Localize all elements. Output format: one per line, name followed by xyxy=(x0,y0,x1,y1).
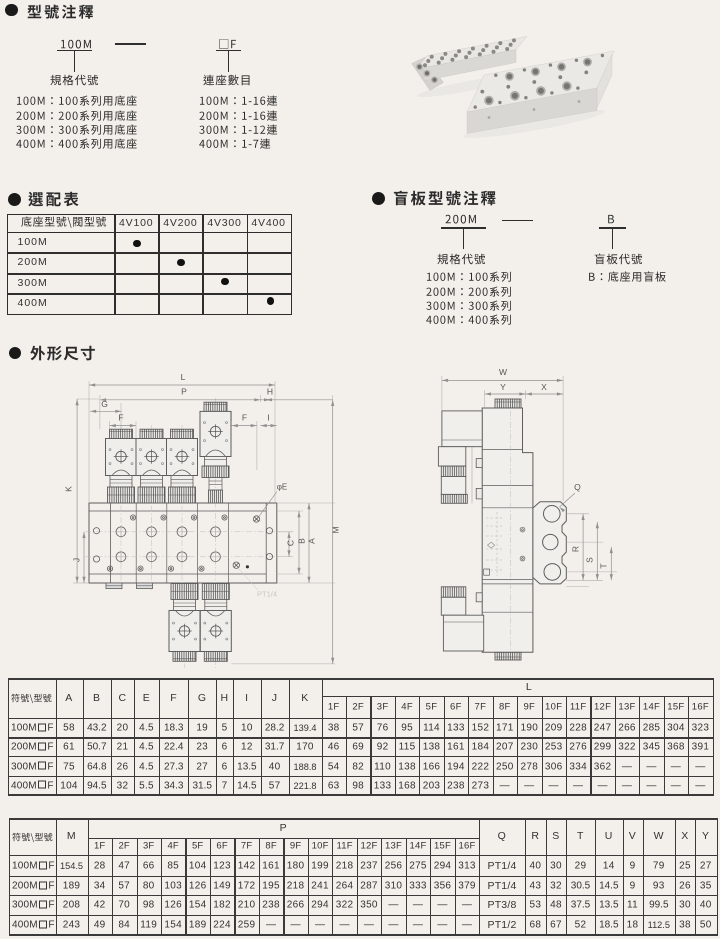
svg-text:I: I xyxy=(267,413,269,423)
svg-text:A: A xyxy=(307,538,317,544)
svg-text:PT1/4: PT1/4 xyxy=(257,590,277,599)
svg-text:L: L xyxy=(181,372,186,382)
svg-text:P: P xyxy=(181,387,187,397)
svg-text:B: B xyxy=(297,538,307,544)
svg-text:G: G xyxy=(101,399,108,409)
svg-text:H: H xyxy=(267,387,273,397)
svg-text:R: R xyxy=(571,546,581,552)
svg-text:C: C xyxy=(286,540,296,546)
svg-text:Q: Q xyxy=(574,482,581,492)
svg-text:X: X xyxy=(541,382,547,392)
svg-text:F: F xyxy=(118,413,123,423)
svg-text:M: M xyxy=(331,526,341,533)
svg-text:J: J xyxy=(72,558,82,562)
svg-text:Y: Y xyxy=(500,382,506,392)
svg-text:W: W xyxy=(499,367,507,377)
svg-text:F: F xyxy=(242,413,247,423)
svg-text:φE: φE xyxy=(277,483,288,492)
svg-text:T: T xyxy=(599,563,609,568)
svg-text:S: S xyxy=(585,557,595,563)
svg-text:K: K xyxy=(64,486,74,492)
